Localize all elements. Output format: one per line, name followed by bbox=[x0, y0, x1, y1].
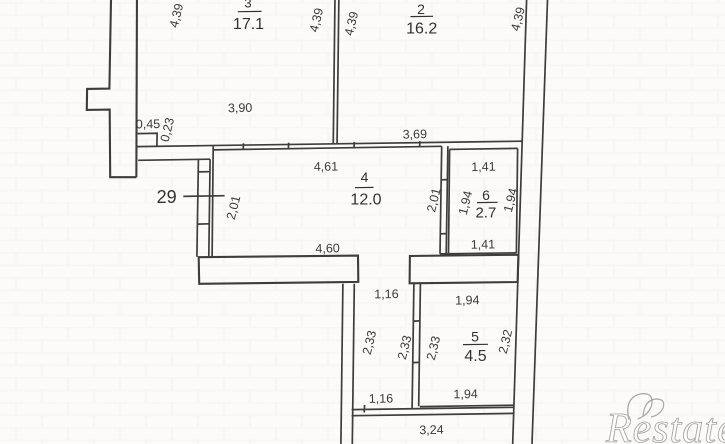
svg-text:6: 6 bbox=[482, 187, 490, 203]
svg-text:Restate: Restate bbox=[605, 406, 725, 444]
svg-text:3,24: 3,24 bbox=[419, 423, 444, 437]
svg-text:1,41: 1,41 bbox=[471, 237, 496, 251]
svg-text:3,90: 3,90 bbox=[228, 101, 253, 115]
svg-text:2.7: 2.7 bbox=[475, 205, 496, 222]
svg-text:3,69: 3,69 bbox=[403, 127, 428, 141]
svg-text:1,16: 1,16 bbox=[369, 391, 394, 405]
svg-text:0,45: 0,45 bbox=[136, 117, 161, 131]
svg-text:1,41: 1,41 bbox=[471, 160, 496, 174]
svg-text:29: 29 bbox=[157, 187, 177, 207]
svg-text:17.1: 17.1 bbox=[233, 16, 264, 33]
svg-text:16.2: 16.2 bbox=[406, 21, 437, 38]
svg-text:1,16: 1,16 bbox=[374, 287, 399, 301]
svg-text:3: 3 bbox=[244, 0, 251, 11]
svg-text:4: 4 bbox=[361, 169, 369, 185]
svg-text:1,94: 1,94 bbox=[455, 293, 480, 307]
svg-text:5: 5 bbox=[471, 329, 479, 345]
svg-text:2: 2 bbox=[417, 1, 425, 17]
svg-text:4.5: 4.5 bbox=[464, 348, 486, 365]
svg-text:4,61: 4,61 bbox=[314, 159, 339, 173]
svg-text:12.0: 12.0 bbox=[350, 192, 381, 209]
svg-text:4,60: 4,60 bbox=[315, 241, 340, 255]
svg-text:1,94: 1,94 bbox=[453, 387, 478, 401]
